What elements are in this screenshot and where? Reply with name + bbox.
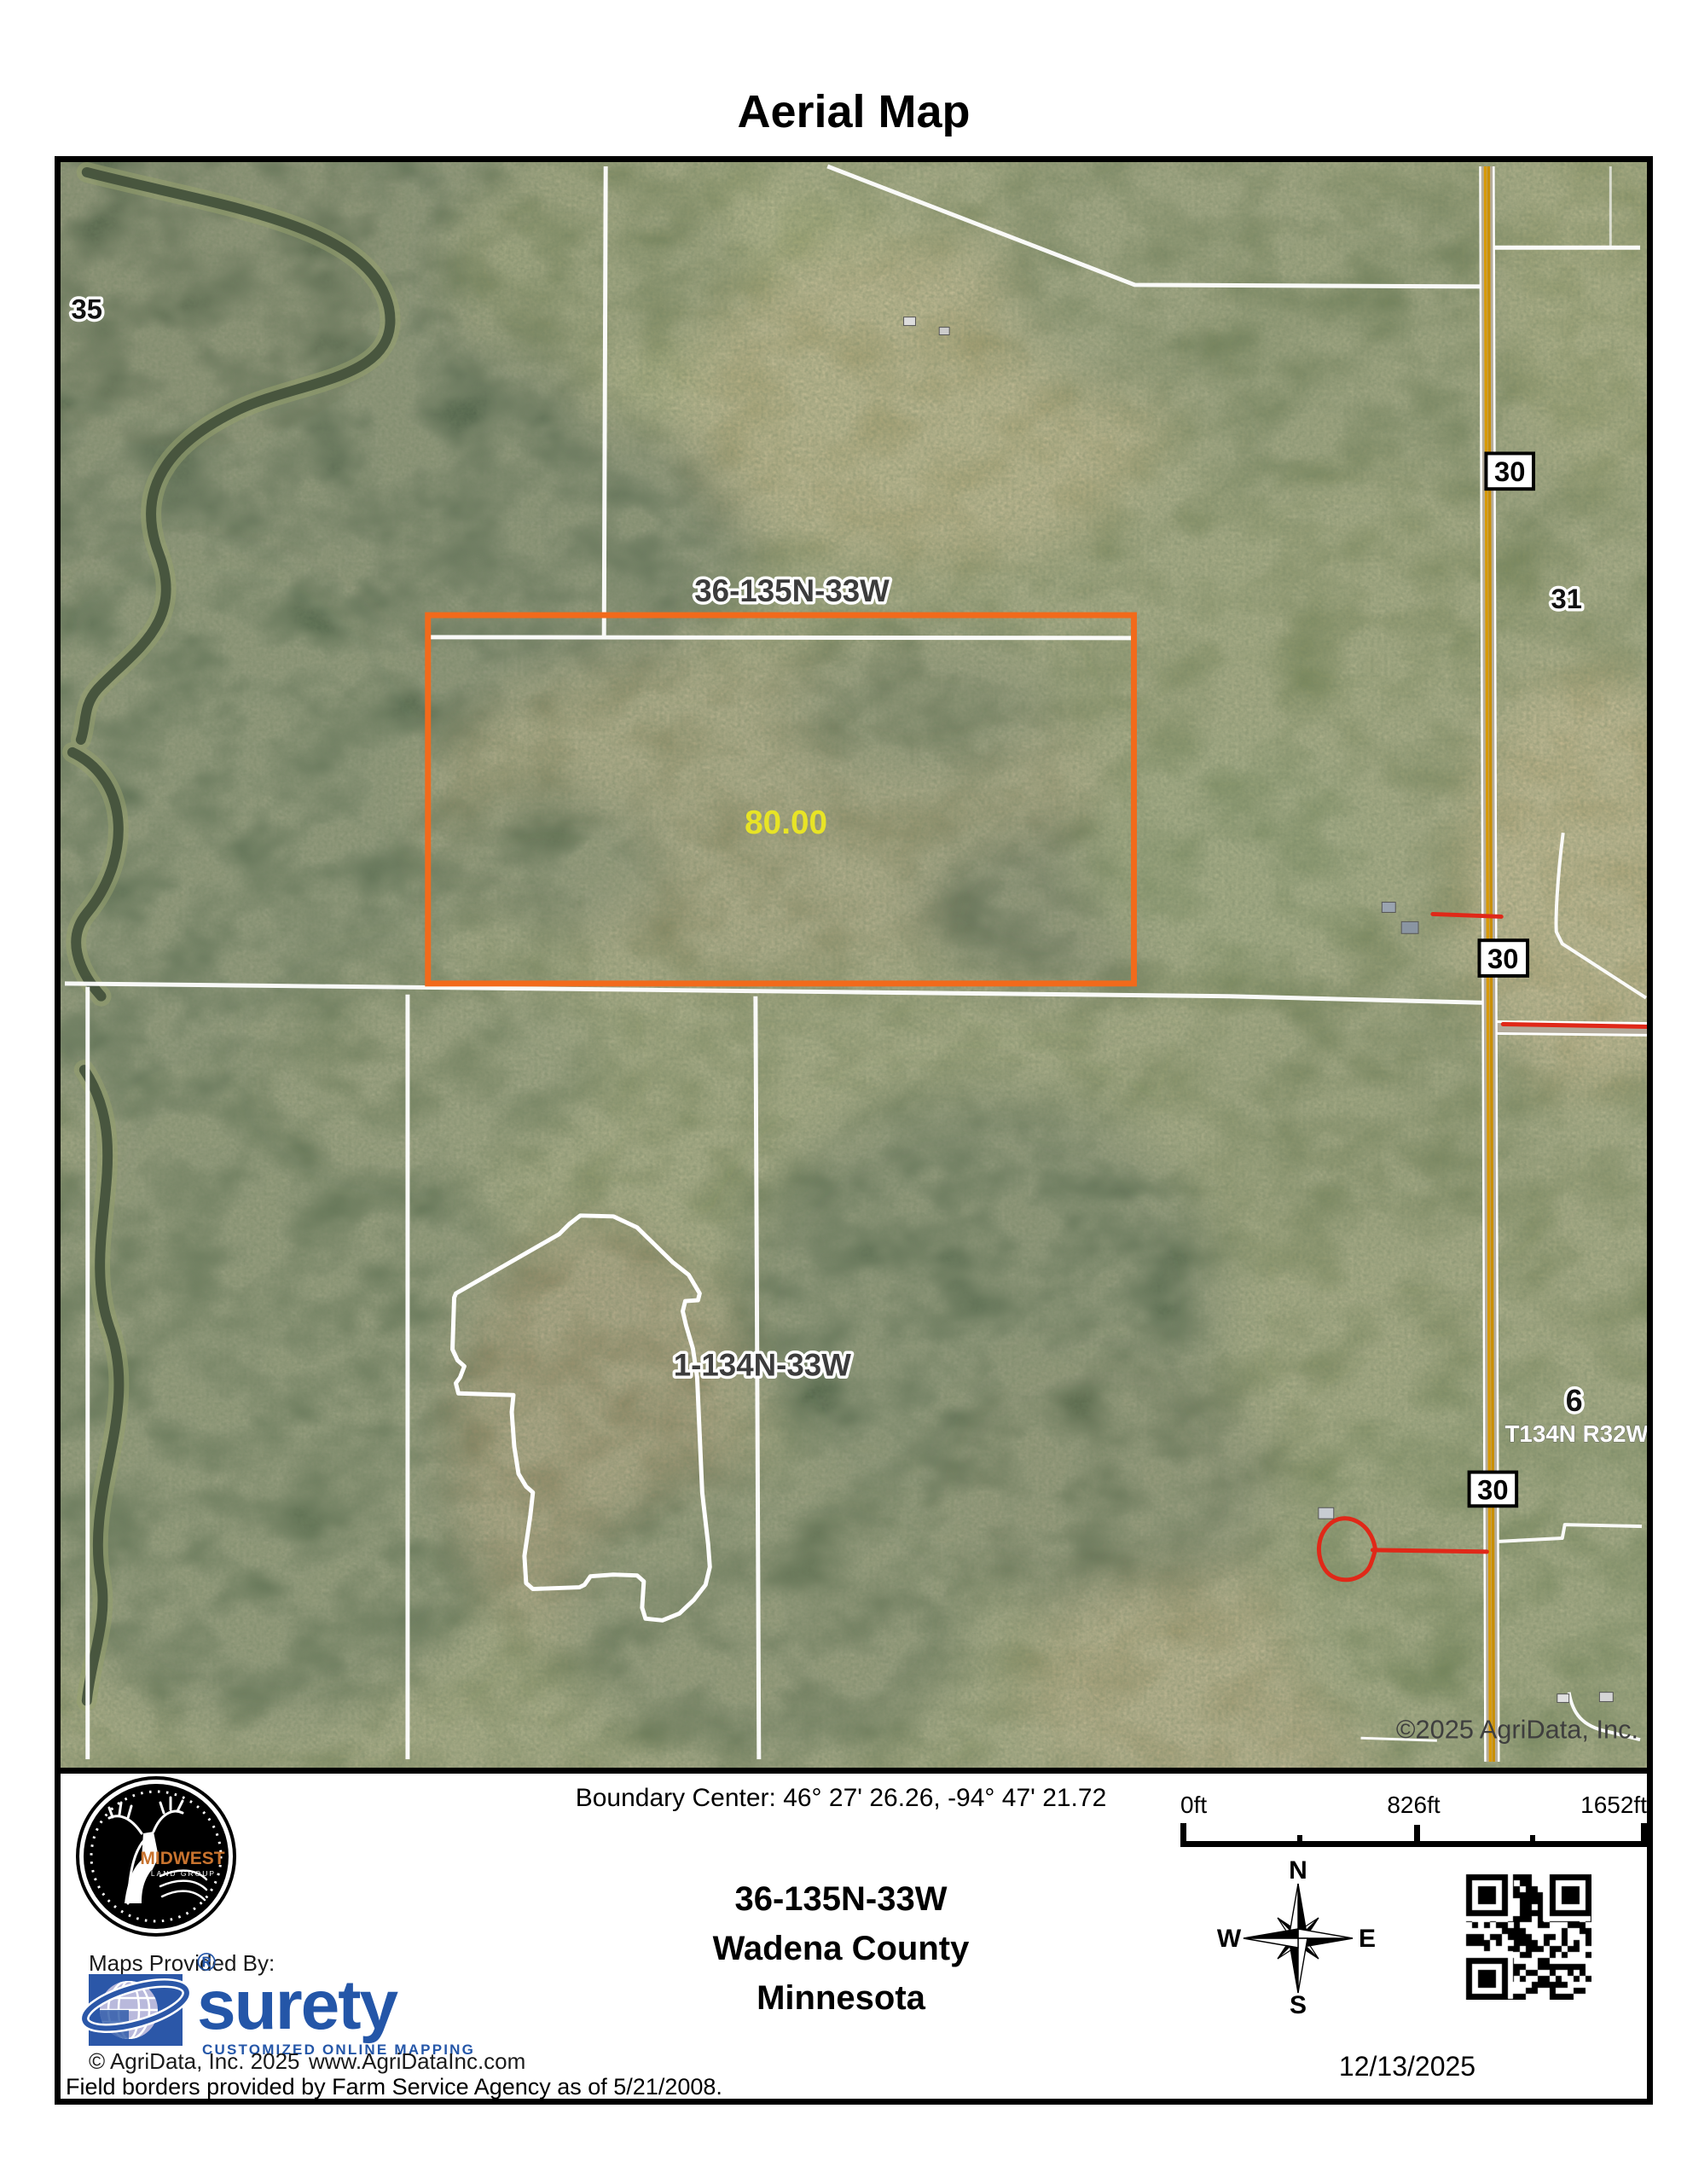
scale-label-0: 0ft [1180, 1792, 1207, 1819]
scale-label-end: 1652ft [1580, 1792, 1647, 1819]
logo-brand-text: MIDWEST [140, 1849, 224, 1868]
compass-w-label: W [1217, 1925, 1242, 1953]
acreage-label: 80.00 [745, 804, 827, 841]
aerial-map-page: Aerial Map [0, 0, 1687, 2184]
compass-rose: N S E W [1213, 1853, 1383, 2024]
highway-shield-bottom-label: 30 [1477, 1473, 1508, 1505]
terrain-texture-fine [61, 162, 1647, 1768]
registered-mark: ® [197, 1949, 214, 1977]
agridata-website: www.AgriDataInc.com [309, 2048, 525, 2075]
midwest-land-group-logo: MIDWEST LAND GROUP [75, 1775, 237, 1937]
scale-bar [1180, 1823, 1647, 1847]
surety-name: surety [197, 1971, 397, 2041]
compass-e-label: E [1359, 1925, 1376, 1953]
section-label-6: 6 [1566, 1384, 1583, 1418]
section-label-36: 36-135N-33W [694, 573, 890, 608]
section-label-35: 35 [72, 293, 102, 325]
surety-wordmark: surety® [197, 1971, 214, 2041]
map-footer: MIDWEST LAND GROUP Maps Provided By: sur… [55, 1774, 1653, 2105]
compass-n-label: N [1289, 1856, 1307, 1885]
page-title: Aerial Map [55, 85, 1653, 138]
highway-shield-top-label: 30 [1494, 456, 1525, 487]
compass-s-label: S [1290, 1991, 1307, 2019]
highway-shield-middle: 30 [1479, 940, 1528, 976]
scale-tick [1180, 1823, 1186, 1847]
section-label-1: 1-134N-33W [674, 1347, 851, 1382]
location-state: Minnesota [572, 1973, 1110, 2023]
scale-tick [1414, 1825, 1420, 1847]
location-block: 36-135N-33W Wadena County Minnesota [572, 1874, 1110, 2023]
location-county: Wadena County [572, 1924, 1110, 1973]
location-section: 36-135N-33W [572, 1874, 1110, 1924]
map-date: 12/13/2025 [1322, 2051, 1493, 2082]
scale-label-mid: 826ft [1387, 1792, 1440, 1819]
copyright-watermark: ©2025 AgriData, Inc. [1396, 1714, 1638, 1744]
highway-shield-middle-label: 30 [1487, 943, 1518, 974]
scale-tick [1530, 1835, 1535, 1847]
section-label-31: 31 [1551, 583, 1581, 614]
scale-tick [1297, 1835, 1302, 1847]
aerial-map-image: 35 36-135N-33W 31 80.00 1-134N-33W 6 T13… [55, 156, 1653, 1774]
qr-code [1465, 1873, 1591, 2000]
highway-shield-top: 30 [1486, 453, 1533, 489]
compass-cardinal-points [1244, 1884, 1353, 1993]
township-label: T134N R32W [1504, 1420, 1649, 1447]
logo-brand-subtext: LAND GROUP [151, 1869, 216, 1878]
field-borders-disclaimer: Field borders provided by Farm Service A… [66, 2074, 722, 2100]
boundary-center-coordinates: Boundary Center: 46° 27' 26.26, -94° 47'… [487, 1784, 1195, 1813]
highway-shield-bottom: 30 [1470, 1472, 1517, 1507]
agridata-copyright: © AgriData, Inc. 2025 [89, 2048, 300, 2075]
scale-tick [1641, 1823, 1647, 1847]
